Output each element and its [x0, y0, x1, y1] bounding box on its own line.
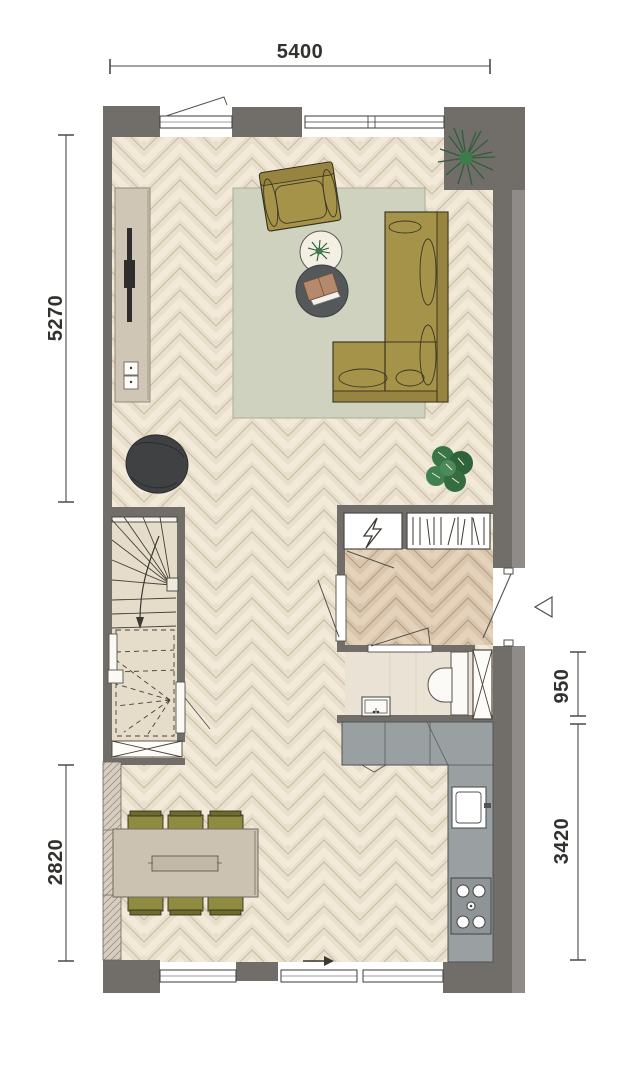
coat-closet	[407, 513, 490, 549]
cooktop	[451, 878, 491, 934]
coffee-table	[296, 265, 348, 317]
hall-door-frame	[336, 575, 346, 641]
dining-table	[113, 829, 258, 897]
dim-label-right-upper: 950	[551, 669, 573, 704]
floor-plan: 5400 5270 2820 950 3420	[0, 0, 630, 1092]
stair-newel	[167, 578, 178, 591]
under-stair-storage	[112, 741, 182, 757]
wall-right-outer-upper	[512, 190, 525, 568]
kitchen-faucet	[484, 803, 491, 808]
floor-plan-canvas: 5400 5270 2820 950 3420	[0, 0, 630, 1092]
hand-basin	[362, 697, 390, 716]
wall-hall-left-lower	[337, 641, 345, 652]
kitchen-sink	[452, 787, 491, 828]
dining-chair	[128, 811, 163, 830]
front-door-jamb-bottom	[504, 640, 513, 646]
front-door-jamb-top	[504, 568, 513, 574]
dim-label-right-lower: 3420	[551, 818, 573, 865]
dining-chair	[208, 896, 243, 915]
wall-closet-divider	[402, 513, 407, 549]
wall-right-upper	[493, 190, 512, 568]
dining-chair	[168, 811, 203, 830]
dining-chair	[128, 896, 163, 915]
wall-stair-top	[103, 507, 185, 517]
stair-side-box	[108, 670, 123, 683]
dining-chair	[168, 896, 203, 915]
window-swing-line	[166, 97, 227, 116]
dining-chair	[208, 811, 243, 830]
installation-shaft	[473, 650, 492, 719]
wall-bottom-left-block	[103, 960, 160, 993]
wall-toilet-top-right	[432, 645, 475, 652]
dim-label-left-lower: 2820	[45, 839, 67, 886]
wall-right-lower	[493, 646, 512, 993]
understair-door-frame	[176, 682, 185, 733]
wall-toilet-top-left	[345, 645, 368, 652]
entry-marker-triangle-icon	[535, 597, 552, 617]
wall-right-outer-lower	[512, 646, 525, 993]
wall-left-upper	[103, 106, 112, 507]
tv-cabinet	[115, 188, 150, 402]
wall-top-right-block	[444, 107, 525, 190]
wall-top-pier	[232, 107, 302, 137]
toilet-door-frame	[368, 645, 432, 652]
armchair	[259, 162, 341, 232]
staircase-floor	[112, 517, 177, 741]
tv-bracket	[124, 260, 135, 288]
table-runner	[152, 856, 218, 871]
wall-bottom-pier	[236, 962, 278, 981]
dining-set	[113, 811, 258, 915]
dim-label-left-upper: 5270	[45, 295, 67, 342]
dim-label-top: 5400	[277, 41, 324, 63]
